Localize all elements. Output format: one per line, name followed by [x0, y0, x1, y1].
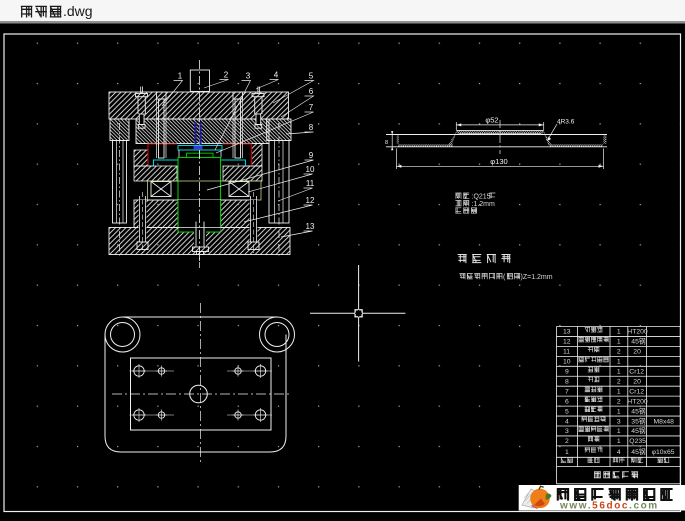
svg-text:1: 1 — [617, 408, 621, 415]
svg-text:35钢: 35钢 — [631, 416, 646, 425]
svg-text:HT200: HT200 — [627, 329, 648, 336]
svg-text:4: 4 — [565, 418, 569, 425]
svg-text:2: 2 — [565, 438, 569, 445]
svg-text:10: 10 — [306, 165, 315, 174]
svg-text:φ130: φ130 — [490, 157, 507, 166]
svg-text:8: 8 — [565, 379, 569, 386]
svg-text:www.56doc.com: www.56doc.com — [559, 500, 659, 511]
svg-text:5: 5 — [309, 72, 314, 81]
svg-text:9: 9 — [309, 151, 314, 160]
svg-text:45钢: 45钢 — [631, 447, 646, 456]
svg-text:M8x48: M8x48 — [654, 418, 675, 425]
svg-text:13: 13 — [306, 222, 315, 231]
svg-text::Q215: :Q215 — [472, 194, 491, 201]
svg-text:45钢: 45钢 — [631, 406, 646, 415]
svg-text:45钢: 45钢 — [631, 337, 646, 346]
svg-text:Cr12: Cr12 — [629, 369, 644, 376]
svg-text:3: 3 — [246, 72, 251, 81]
svg-text:4: 4 — [617, 449, 621, 456]
svg-text:7: 7 — [565, 388, 569, 395]
svg-text:6: 6 — [565, 398, 569, 405]
svg-text:3: 3 — [617, 418, 621, 425]
svg-text:2: 2 — [617, 349, 621, 356]
svg-text:1: 1 — [565, 449, 569, 456]
svg-text:45钢: 45钢 — [631, 426, 646, 435]
svg-text:12: 12 — [306, 196, 315, 205]
svg-text:20: 20 — [633, 349, 641, 356]
svg-text:13: 13 — [563, 329, 571, 336]
svg-text:12: 12 — [563, 339, 571, 346]
svg-text:6: 6 — [309, 87, 314, 96]
svg-text:10: 10 — [563, 359, 571, 366]
svg-text:1: 1 — [617, 388, 621, 395]
svg-text:11: 11 — [563, 349, 570, 356]
svg-text:4R3.6: 4R3.6 — [557, 119, 575, 126]
svg-text:8: 8 — [309, 123, 314, 132]
svg-text:1: 1 — [617, 438, 621, 445]
svg-text:1: 1 — [617, 329, 621, 336]
svg-text:Cr12: Cr12 — [629, 388, 644, 395]
svg-text::1.2mm: :1.2mm — [472, 201, 496, 208]
svg-text:8: 8 — [385, 140, 388, 146]
svg-text:4: 4 — [274, 71, 279, 80]
svg-text:1: 1 — [617, 369, 621, 376]
svg-text:.dwg: .dwg — [63, 3, 93, 19]
svg-text:9: 9 — [565, 369, 569, 376]
svg-text:11: 11 — [306, 179, 315, 188]
svg-text:1: 1 — [617, 428, 621, 435]
svg-text:7: 7 — [309, 103, 314, 112]
svg-text:1: 1 — [178, 72, 183, 81]
svg-text:5: 5 — [565, 408, 569, 415]
svg-text:20: 20 — [633, 379, 641, 386]
svg-text:)Z=1.2mm: )Z=1.2mm — [521, 274, 553, 281]
svg-text:2: 2 — [617, 379, 621, 386]
svg-text:2: 2 — [224, 71, 229, 80]
svg-text:3: 3 — [565, 428, 569, 435]
svg-text:2: 2 — [617, 398, 621, 405]
svg-text:Q235: Q235 — [629, 438, 646, 445]
svg-text:1: 1 — [617, 359, 621, 366]
svg-text:φ10x65: φ10x65 — [652, 449, 675, 456]
svg-text:φ52: φ52 — [485, 116, 498, 125]
svg-text:1: 1 — [617, 339, 621, 346]
svg-text:HT200: HT200 — [627, 398, 648, 405]
